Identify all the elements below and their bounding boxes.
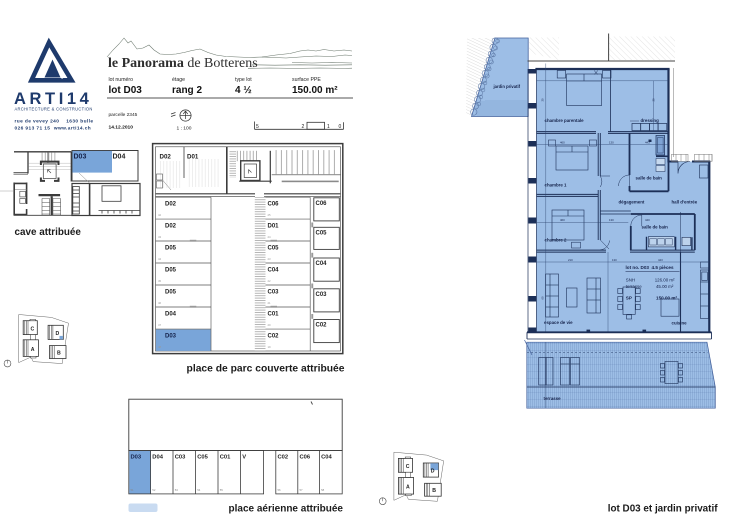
svg-text:1 : 100: 1 : 100 bbox=[177, 126, 192, 132]
svg-text:lot numéro: lot numéro bbox=[109, 77, 134, 83]
svg-text:D: D bbox=[56, 331, 60, 337]
svg-text:53: 53 bbox=[175, 488, 179, 492]
svg-text:D01: D01 bbox=[268, 224, 280, 230]
svg-text:D02: D02 bbox=[160, 154, 172, 161]
svg-text:D05: D05 bbox=[165, 268, 177, 274]
svg-text:C03: C03 bbox=[175, 455, 186, 461]
svg-text:126.00 m²: 126.00 m² bbox=[655, 277, 675, 282]
svg-text:1: 1 bbox=[327, 124, 330, 130]
svg-text:56: 56 bbox=[278, 488, 282, 492]
svg-text:place aérienne attribuée: place aérienne attribuée bbox=[229, 504, 344, 515]
svg-text:48: 48 bbox=[158, 345, 162, 349]
svg-text:jardin privatif: jardin privatif bbox=[493, 84, 521, 89]
svg-text:57: 57 bbox=[300, 488, 304, 492]
svg-text:D05: D05 bbox=[165, 246, 177, 252]
svg-text:lot D03: lot D03 bbox=[109, 85, 143, 96]
svg-text:C: C bbox=[31, 327, 35, 333]
svg-text:cave attribuée: cave attribuée bbox=[15, 227, 82, 238]
svg-text:440: 440 bbox=[645, 218, 650, 222]
svg-text:B: B bbox=[432, 488, 436, 494]
svg-text:type lot: type lot bbox=[235, 77, 252, 83]
svg-text:C05: C05 bbox=[197, 455, 208, 461]
svg-text:B: B bbox=[57, 351, 61, 357]
svg-text:026 913 71 15 www.arti14.ch: 026 913 71 15 www.arti14.ch bbox=[15, 126, 92, 132]
svg-text:C: C bbox=[406, 464, 410, 470]
svg-text:C02: C02 bbox=[316, 323, 328, 329]
svg-text:43: 43 bbox=[158, 235, 162, 239]
svg-text:130: 130 bbox=[609, 218, 614, 222]
svg-text:2: 2 bbox=[302, 124, 305, 130]
svg-text:salle de bain: salle de bain bbox=[636, 176, 663, 181]
svg-text:dégagement: dégagement bbox=[619, 200, 645, 205]
svg-text:150.00 m²: 150.00 m² bbox=[292, 85, 338, 96]
svg-text:52: 52 bbox=[152, 488, 156, 492]
svg-text:150.00 m²: 150.00 m² bbox=[656, 295, 677, 300]
svg-text:21: 21 bbox=[268, 301, 272, 305]
svg-text:ARTI14: ARTI14 bbox=[14, 90, 92, 108]
svg-text:C01: C01 bbox=[220, 455, 231, 461]
svg-text:130: 130 bbox=[609, 141, 614, 145]
svg-text:C04: C04 bbox=[316, 261, 328, 267]
svg-text:25: 25 bbox=[268, 213, 272, 217]
svg-text:D05: D05 bbox=[165, 290, 177, 296]
svg-text:D03: D03 bbox=[74, 154, 87, 161]
svg-text:C06: C06 bbox=[316, 201, 328, 207]
svg-text:rang 2: rang 2 bbox=[172, 85, 202, 96]
svg-text:D04: D04 bbox=[113, 154, 126, 161]
svg-text:51: 51 bbox=[131, 488, 135, 492]
svg-text:cuisine: cuisine bbox=[672, 321, 688, 326]
svg-text:22: 22 bbox=[268, 279, 272, 283]
svg-text:130: 130 bbox=[612, 258, 617, 262]
svg-text:C05: C05 bbox=[268, 246, 280, 252]
svg-text:dressing: dressing bbox=[641, 118, 660, 123]
svg-text:chambre 1: chambre 1 bbox=[545, 183, 568, 188]
svg-text:C03: C03 bbox=[268, 290, 280, 296]
svg-text:44: 44 bbox=[158, 257, 162, 261]
svg-text:étage: étage bbox=[172, 77, 185, 83]
svg-text:C04: C04 bbox=[268, 268, 280, 274]
svg-text:23: 23 bbox=[268, 257, 272, 261]
svg-text:D04: D04 bbox=[152, 455, 163, 461]
svg-text:45.00 m²: 45.00 m² bbox=[656, 284, 674, 289]
svg-text:D03: D03 bbox=[131, 455, 142, 461]
svg-text:ARCHITECTURE & CONSTRUCTION: ARCHITECTURE & CONSTRUCTION bbox=[15, 107, 93, 112]
svg-text:C04: C04 bbox=[321, 455, 332, 461]
svg-text:D01: D01 bbox=[187, 154, 199, 161]
svg-text:chambre parentale: chambre parentale bbox=[545, 118, 585, 123]
svg-text:C03: C03 bbox=[316, 292, 328, 298]
svg-text:45: 45 bbox=[158, 279, 162, 283]
svg-text:D: D bbox=[431, 469, 435, 475]
svg-text:D02: D02 bbox=[165, 224, 177, 230]
svg-text:salle de bain: salle de bain bbox=[642, 225, 669, 230]
svg-text:460: 460 bbox=[560, 141, 565, 145]
svg-text:443: 443 bbox=[658, 258, 663, 262]
svg-text:D03: D03 bbox=[165, 334, 177, 340]
svg-text:C05: C05 bbox=[316, 230, 328, 236]
svg-text:30: 30 bbox=[652, 98, 656, 102]
svg-text:terrasse: terrasse bbox=[626, 284, 642, 289]
svg-text:D02: D02 bbox=[165, 202, 177, 208]
svg-text:47: 47 bbox=[158, 323, 162, 327]
svg-text:parcelle 2345: parcelle 2345 bbox=[109, 112, 138, 118]
svg-text:443: 443 bbox=[645, 141, 650, 145]
svg-text:lot D03 et jardin privatif: lot D03 et jardin privatif bbox=[608, 504, 718, 515]
svg-text:20: 20 bbox=[268, 323, 272, 327]
svg-text:C06: C06 bbox=[268, 202, 280, 208]
svg-text:460: 460 bbox=[560, 218, 565, 222]
svg-text:SP: SP bbox=[626, 295, 632, 300]
svg-text:terrasse: terrasse bbox=[544, 396, 562, 401]
svg-text:C01: C01 bbox=[268, 312, 280, 318]
svg-text:C02: C02 bbox=[268, 334, 280, 340]
svg-text:46: 46 bbox=[158, 301, 162, 305]
svg-text:58: 58 bbox=[321, 488, 325, 492]
svg-text:42: 42 bbox=[158, 213, 162, 217]
svg-text:0: 0 bbox=[339, 124, 342, 130]
svg-text:210: 210 bbox=[568, 258, 573, 262]
svg-text:C06: C06 bbox=[300, 455, 311, 461]
svg-text:le Panorama de Botterens: le Panorama de Botterens bbox=[108, 56, 258, 71]
svg-text:V: V bbox=[242, 455, 246, 461]
svg-text:C02: C02 bbox=[278, 455, 289, 461]
svg-text:A: A bbox=[31, 347, 35, 353]
svg-text:4 ½: 4 ½ bbox=[235, 85, 252, 96]
svg-text:30: 30 bbox=[541, 98, 545, 102]
svg-text:19: 19 bbox=[268, 345, 272, 349]
svg-text:hall d'entrée: hall d'entrée bbox=[672, 200, 698, 205]
svg-text:lot no. D03 4.5 pièces: lot no. D03 4.5 pièces bbox=[626, 265, 674, 270]
svg-text:rue de vevey 240 1630 bulle: rue de vevey 240 1630 bulle bbox=[15, 119, 94, 125]
svg-text:D04: D04 bbox=[165, 312, 177, 318]
svg-text:54: 54 bbox=[197, 488, 201, 492]
svg-text:place de parc couverte attribu: place de parc couverte attribuée bbox=[187, 364, 345, 375]
svg-text:espace de vie: espace de vie bbox=[544, 320, 573, 325]
svg-text:A: A bbox=[406, 485, 410, 491]
svg-text:55: 55 bbox=[220, 488, 224, 492]
svg-text:surface PPE: surface PPE bbox=[292, 77, 321, 83]
svg-text:14.12.2010: 14.12.2010 bbox=[109, 125, 134, 131]
svg-text:24: 24 bbox=[268, 235, 272, 239]
svg-text:5: 5 bbox=[256, 124, 259, 130]
svg-text:SNH: SNH bbox=[626, 277, 635, 282]
svg-text:60: 60 bbox=[541, 296, 545, 300]
